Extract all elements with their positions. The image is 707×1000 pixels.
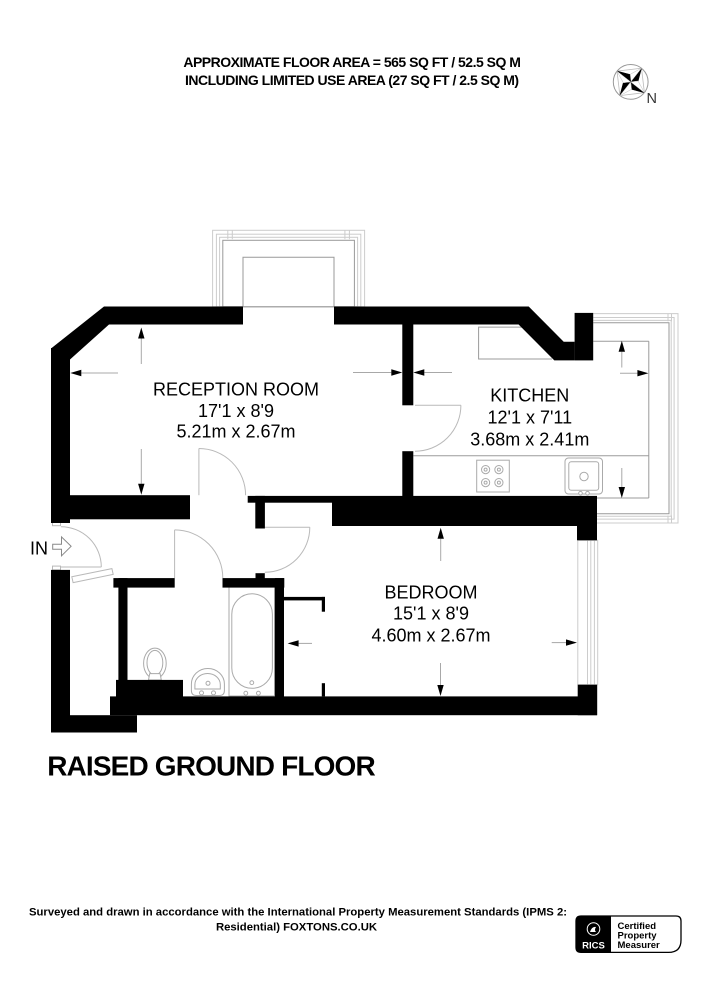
svg-text:5.21m x 2.67m: 5.21m x 2.67m [176,421,295,441]
svg-text:3.68m x 2.41m: 3.68m x 2.41m [470,430,589,450]
svg-text:RAISED GROUND FLOOR: RAISED GROUND FLOOR [47,751,375,782]
svg-text:N: N [647,91,657,107]
svg-text:INCLUDING LIMITED USE AREA (27: INCLUDING LIMITED USE AREA (27 SQ FT / 2… [185,72,519,88]
svg-text:RICS: RICS [582,941,605,952]
svg-text:17'1 x 8'9: 17'1 x 8'9 [198,401,274,421]
svg-text:Residential) FOXTONS.CO.UK: Residential) FOXTONS.CO.UK [216,921,378,933]
svg-text:APPROXIMATE FLOOR AREA = 565 S: APPROXIMATE FLOOR AREA = 565 SQ FT / 52.… [183,54,520,70]
svg-text:Measurer: Measurer [618,940,661,951]
svg-text:RECEPTION ROOM: RECEPTION ROOM [153,380,319,400]
svg-text:BEDROOM: BEDROOM [384,582,477,602]
svg-text:4.60m x 2.67m: 4.60m x 2.67m [371,625,490,645]
svg-text:KITCHEN: KITCHEN [490,385,569,405]
svg-text:12'1 x 7'11: 12'1 x 7'11 [487,408,572,428]
svg-text:15'1 x 8'9: 15'1 x 8'9 [393,604,469,624]
svg-text:IN: IN [30,538,48,558]
svg-text:Surveyed and drawn in accordan: Surveyed and drawn in accordance with th… [29,907,567,919]
